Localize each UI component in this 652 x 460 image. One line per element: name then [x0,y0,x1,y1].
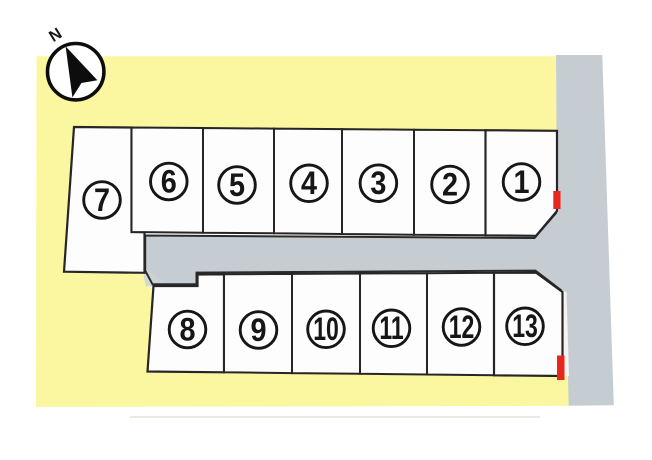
svg-text:9: 9 [250,312,266,348]
svg-text:8: 8 [179,312,195,348]
svg-text:6: 6 [161,164,177,200]
svg-text:2: 2 [442,167,458,203]
svg-text:13: 13 [512,308,538,344]
svg-text:12: 12 [449,309,475,345]
svg-text:3: 3 [370,166,386,202]
svg-text:N: N [46,25,65,46]
svg-text:5: 5 [229,167,245,203]
svg-text:10: 10 [313,311,339,347]
svg-text:11: 11 [379,310,403,346]
svg-text:4: 4 [301,166,317,202]
svg-text:1: 1 [513,164,529,200]
svg-text:7: 7 [94,182,110,218]
